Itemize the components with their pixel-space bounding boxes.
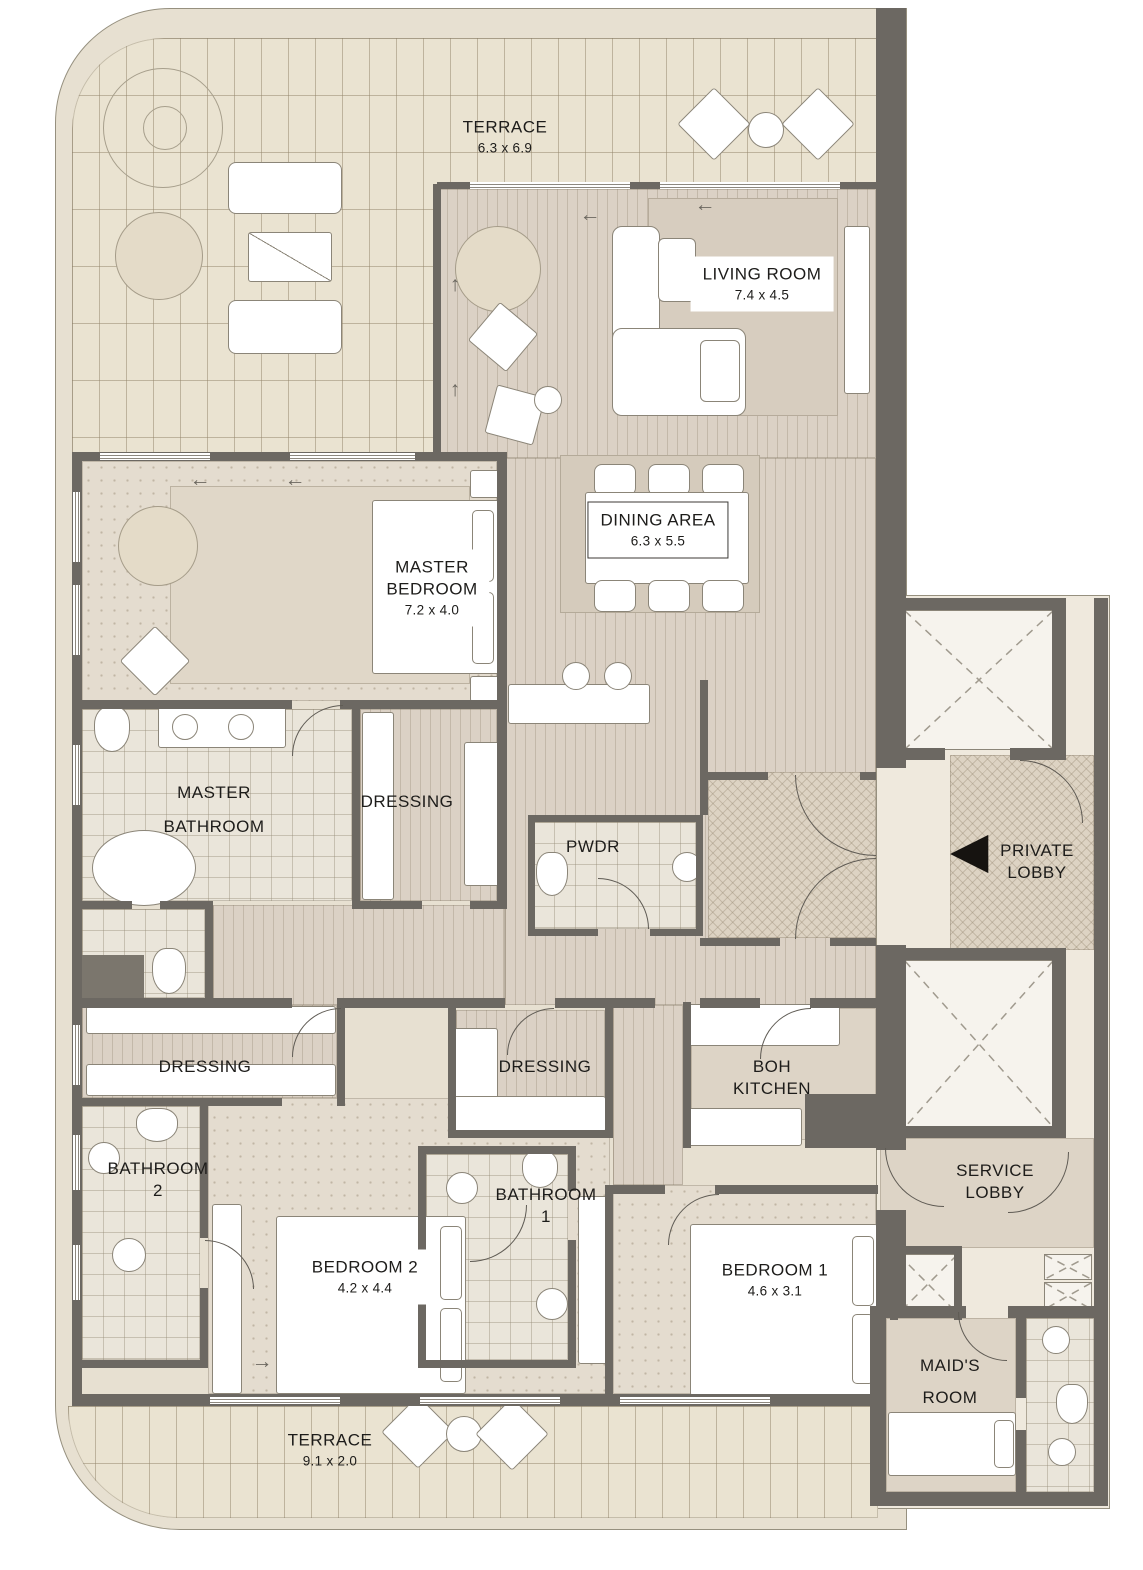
room-label-bedroom-2: BEDROOM 2 4.2 x 4.4 [300,1250,431,1305]
room-label-dressing-left: DRESSING [159,1056,252,1078]
room-name: DRESSING [361,791,454,813]
direction-arrow-icon: ← [285,468,306,492]
wall [805,1094,876,1148]
wall [1016,1430,1026,1500]
entry-arrow-icon: ◀ [950,825,988,875]
vanity-counter [82,955,144,999]
direction-arrow-icon: ← [580,203,601,227]
pillow [852,1236,874,1306]
wall [1010,748,1066,760]
room-label-boh-kitchen: BOH KITCHEN [733,1056,811,1100]
window [470,182,630,189]
room-label-dressing-middle: DRESSING [499,1056,592,1078]
wall [340,700,507,709]
room-label-bathroom-2: BATHROOM 2 [108,1158,209,1202]
room-name: BATHROOM [496,1184,597,1206]
wall [870,1306,886,1506]
window [73,585,80,655]
room-dims: 4.2 x 4.4 [312,1280,419,1298]
room-name: MASTER [386,557,477,579]
wall [870,1492,1108,1506]
room-name: TERRACE [463,117,548,139]
wardrobe [452,1096,606,1132]
floor-plan: ← ← ↑ ↑ ← ← → ◀ TERRACE 6.3 x 6.9 LIVING… [0,0,1143,1570]
wall [700,938,780,946]
room-label-terrace-bottom: TERRACE 9.1 x 2.0 [288,1430,373,1471]
dining-chair [594,580,636,612]
room-name: LIVING ROOM [703,264,822,286]
wall [82,1360,208,1368]
room-name: 2 [108,1180,209,1202]
room-dims: 7.4 x 4.5 [703,287,822,305]
bed [690,1224,878,1396]
wall [82,901,132,909]
room-name: LOBBY [1000,862,1074,884]
room-dims: 4.6 x 3.1 [722,1283,829,1301]
room-name: DRESSING [159,1056,252,1078]
nightstand [470,676,500,702]
room-label-maids-room: MAID'S ROOM [920,1350,980,1414]
room-dims: 6.3 x 5.5 [600,533,715,551]
room-name: DRESSING [499,1056,592,1078]
direction-arrow-icon: ↑ [450,378,461,402]
toilet [1056,1384,1088,1424]
wall [890,1126,1066,1138]
terrace-sofa [228,300,342,354]
room-dims: 7.2 x 4.0 [386,602,477,620]
wall [448,1002,456,1138]
window [290,453,415,460]
pillow [440,1308,462,1382]
room-label-private-lobby: PRIVATE LOBBY [1000,840,1074,884]
window [660,182,840,189]
room-dims: 9.1 x 2.0 [288,1453,373,1471]
window [73,1245,80,1300]
room-name: MAID'S [920,1350,980,1382]
duct-shaft [1044,1254,1092,1280]
wall [528,815,535,936]
direction-arrow-icon: ← [695,193,716,217]
room-name: TERRACE [288,1430,373,1452]
terrace-sofa [228,162,342,214]
wall [890,598,1066,610]
direction-arrow-icon: ← [190,468,211,492]
wall [1016,1318,1026,1398]
wall [605,1185,665,1194]
master-plant [118,506,198,586]
wall [497,709,507,909]
shower-drain [1048,1438,1076,1466]
room-label-dining-area: DINING AREA 6.3 x 5.5 [587,502,728,559]
room-label-master-bathroom: MASTER BATHROOM [164,776,265,844]
wall [352,709,360,909]
wardrobe [464,742,500,886]
wall [830,938,876,946]
wall [876,8,906,458]
room-name: BOH [733,1056,811,1078]
sink [1042,1326,1070,1354]
wall [890,948,904,1138]
room-name: BATHROOM [108,1158,209,1180]
bar-stool [604,662,632,690]
wall [528,815,703,822]
tree-trunk-icon [143,106,187,150]
sink [228,714,254,740]
living-round-table [455,226,541,312]
room-label-terrace-top: TERRACE 6.3 x 6.9 [463,117,548,158]
wall [605,1185,613,1397]
wardrobe [86,1006,336,1034]
wall [448,1130,613,1138]
toilet [94,706,130,752]
wall [470,901,507,909]
shower-drain [112,1238,146,1272]
wall [708,772,768,780]
shower-drain [536,1288,568,1320]
wall [700,680,708,815]
sink [446,1172,478,1204]
room-name: BEDROOM [386,579,477,601]
room-name: BEDROOM 1 [722,1260,829,1282]
wall [683,1002,691,1148]
wall [696,815,703,936]
wall [890,1246,962,1254]
sliding-door [620,1397,770,1404]
room-label-service-lobby: SERVICE LOBBY [956,1160,1034,1204]
wall [528,929,598,936]
pillow [440,1226,462,1300]
wall [418,1146,576,1154]
window [73,1135,80,1190]
room-label-bedroom-1: BEDROOM 1 4.6 x 3.1 [710,1253,841,1308]
wall [82,998,292,1008]
wall [82,1098,282,1106]
kitchen-counter [688,1108,802,1146]
wall [1008,1306,1094,1318]
window [73,492,80,562]
room-dims: 6.3 x 6.9 [463,140,548,158]
wall [418,1360,576,1368]
wall [568,1240,576,1365]
room-label-powder-room: PWDR [566,836,620,858]
window [73,1025,80,1085]
pillow [994,1420,1014,1468]
room-name: LOBBY [956,1182,1034,1204]
wardrobe [212,1204,242,1394]
toilet [152,948,186,994]
room-name: BEDROOM 2 [312,1257,419,1279]
direction-arrow-icon: → [252,1350,273,1374]
tv-console [844,226,870,394]
room-name: DINING AREA [600,510,715,532]
corridor-floor [213,905,505,1005]
room-name: BATHROOM [164,810,265,844]
dining-chair [648,580,690,612]
direction-arrow-icon: ↑ [450,273,461,297]
wall [870,1306,966,1318]
wall [160,901,210,909]
wall [890,748,945,760]
room-label-dressing-master: DRESSING [361,791,454,813]
room-name: SERVICE [956,1160,1034,1182]
room-label-living-room: LIVING ROOM 7.4 x 4.5 [691,257,834,312]
room-name: KITCHEN [733,1078,811,1100]
sink [172,714,198,740]
wall [497,452,507,710]
window [73,745,80,805]
toilet [522,1150,558,1188]
wall [1052,598,1066,760]
elevator-shaft [904,960,1054,1128]
nightstand [470,470,500,498]
wall [890,598,904,760]
wall [82,700,292,709]
toilet [536,852,568,896]
terrace-coffee-table [248,232,332,282]
room-label-bathroom-1: BATHROOM 1 [496,1184,597,1228]
terrace-side-table [748,112,784,148]
sofa-cushion [700,340,740,402]
wall [352,901,422,909]
wall [345,998,505,1008]
wall [890,948,1066,960]
wall [205,901,213,1007]
room-name: ROOM [920,1382,980,1414]
window [420,1397,560,1404]
wall [1052,948,1066,1138]
room-name: MASTER [164,776,265,810]
wall [700,998,760,1008]
wall [715,1185,878,1194]
elevator-shaft [904,610,1054,750]
wall [200,1288,208,1368]
window [210,1397,340,1404]
breakfast-counter [508,684,650,724]
room-name: PRIVATE [1000,840,1074,862]
terrace-round-table [115,212,203,300]
wall [605,1002,613,1138]
room-name: PWDR [566,836,620,858]
room-name: 1 [496,1206,597,1228]
wall [433,184,441,459]
wall [1094,598,1108,1506]
room-label-master-bedroom: MASTER BEDROOM 7.2 x 4.0 [374,550,489,627]
dining-chair [702,580,744,612]
wall [810,998,876,1008]
window [100,453,210,460]
corridor-mid-floor [613,1005,683,1185]
floor-lamp-icon [534,386,562,414]
bar-stool [562,662,590,690]
service-elevator-shaft [898,1254,958,1314]
toilet [136,1108,178,1142]
